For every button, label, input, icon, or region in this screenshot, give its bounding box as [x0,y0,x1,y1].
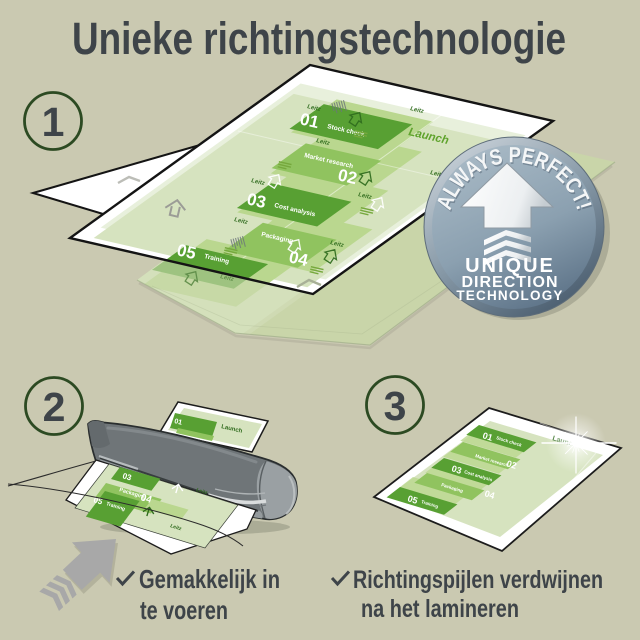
svg-text:2: 2 [43,384,66,430]
svg-text:na het lamineren: na het lamineren [361,595,519,623]
svg-text:TECHNOLOGY: TECHNOLOGY [456,288,563,303]
svg-text:te voeren: te voeren [140,595,228,625]
svg-text:Unieke richtingstechnologie: Unieke richtingstechnologie [72,13,566,64]
svg-text:Richtingspijlen verdwijnen: Richtingspijlen verdwijnen [353,566,603,594]
svg-text:3: 3 [384,383,407,429]
svg-text:Gemakkelijk in: Gemakkelijk in [139,564,280,594]
svg-text:1: 1 [42,99,65,145]
